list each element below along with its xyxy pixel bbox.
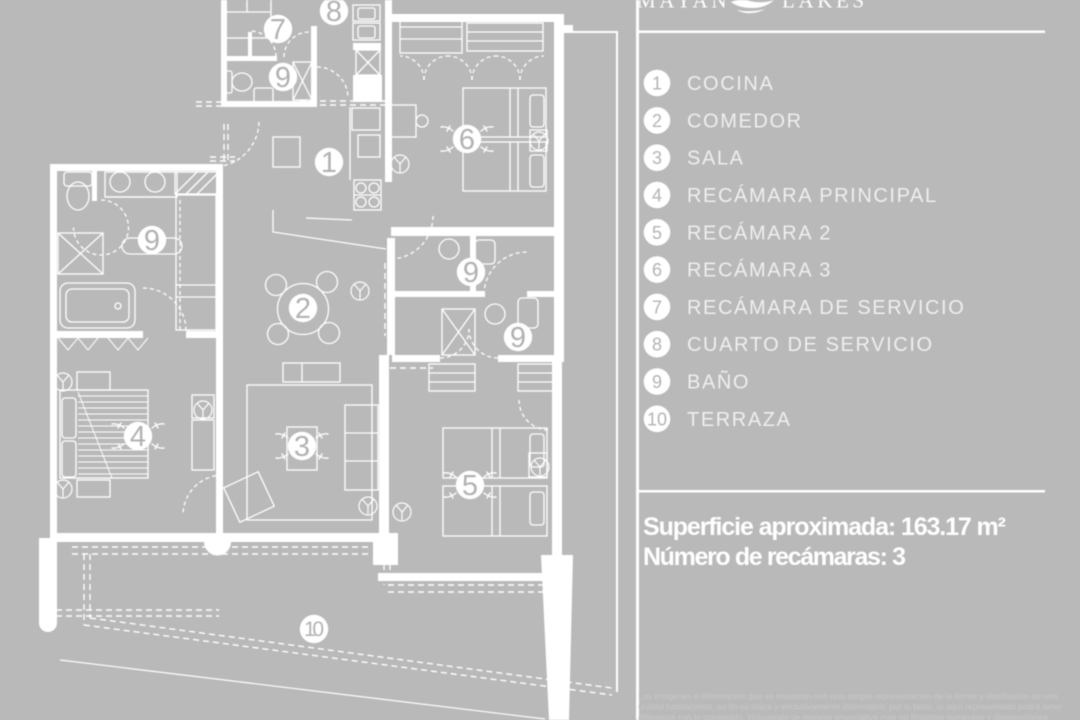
svg-text:9: 9 — [275, 62, 291, 94]
svg-text:COMEDOR: COMEDOR — [687, 110, 803, 132]
svg-text:8: 8 — [652, 335, 662, 355]
svg-text:4: 4 — [652, 186, 662, 206]
svg-text:LAKES: LAKES — [782, 0, 868, 13]
svg-text:6: 6 — [652, 260, 662, 280]
svg-text:1: 1 — [321, 147, 337, 179]
svg-text:9: 9 — [510, 322, 526, 354]
svg-text:4: 4 — [130, 421, 146, 453]
svg-text:RECÁMARA DE SERVICIO: RECÁMARA DE SERVICIO — [687, 296, 965, 319]
svg-text:1: 1 — [652, 74, 662, 94]
svg-text:3: 3 — [294, 431, 310, 463]
svg-text:RECÁMARA 2: RECÁMARA 2 — [687, 221, 832, 244]
svg-text:2: 2 — [652, 111, 662, 131]
svg-text:unidad habitacional, su fin es: unidad habitacional, su fin es única y e… — [638, 702, 1062, 712]
svg-text:Las imágenes e información que: Las imágenes e información que se muestr… — [638, 691, 1058, 701]
svg-text:MAYAN: MAYAN — [637, 0, 730, 13]
svg-text:BAÑO: BAÑO — [687, 370, 750, 394]
svg-text:6: 6 — [459, 124, 475, 156]
svg-text:10: 10 — [647, 409, 667, 429]
svg-text:RECÁMARA 3: RECÁMARA 3 — [687, 259, 832, 282]
svg-text:7: 7 — [270, 14, 286, 46]
svg-text:CUARTO DE SERVICIO: CUARTO DE SERVICIO — [687, 334, 934, 356]
svg-text:SALA: SALA — [687, 148, 745, 170]
svg-text:9: 9 — [652, 372, 662, 392]
svg-text:10: 10 — [304, 618, 324, 641]
svg-text:TERRAZA: TERRAZA — [687, 409, 792, 431]
svg-text:7: 7 — [652, 297, 662, 317]
svg-text:9: 9 — [144, 225, 160, 257]
svg-text:COCINA: COCINA — [687, 73, 774, 95]
svg-text:Número de recámaras: 3: Número de recámaras: 3 — [643, 543, 906, 571]
svg-text:5: 5 — [462, 470, 478, 502]
svg-text:5: 5 — [652, 223, 662, 243]
svg-text:3: 3 — [652, 148, 662, 168]
svg-text:diferencia con lo construido,: diferencia con lo construido, incluyendo… — [638, 712, 1048, 720]
svg-text:2: 2 — [295, 293, 311, 325]
svg-text:9: 9 — [463, 257, 479, 289]
svg-text:RECÁMARA PRINCIPAL: RECÁMARA PRINCIPAL — [687, 184, 938, 207]
svg-text:Superficie aproximada: 163.17: Superficie aproximada: 163.17 m² — [643, 513, 1006, 541]
svg-text:8: 8 — [326, 0, 342, 28]
